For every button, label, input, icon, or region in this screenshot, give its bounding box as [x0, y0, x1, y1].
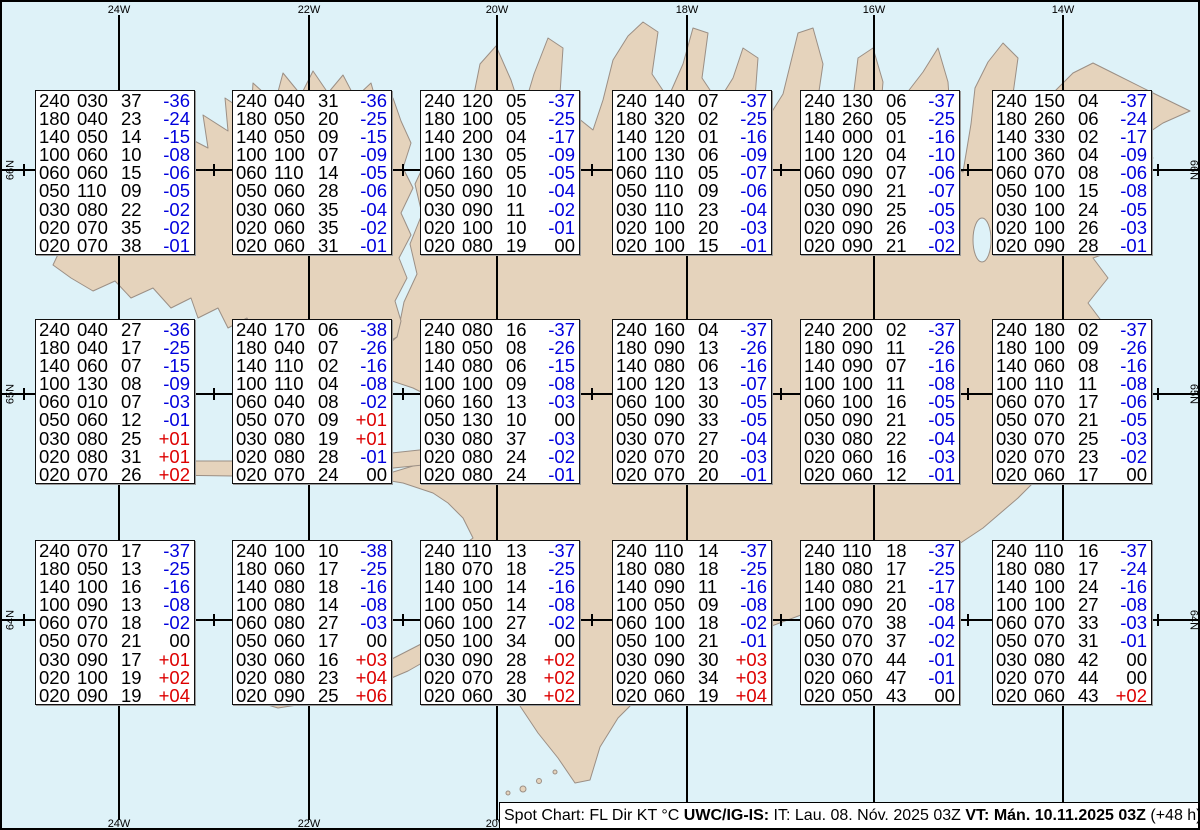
temperature-c: -01 — [349, 237, 391, 255]
spot-level-row: 0200504300 — [804, 687, 959, 705]
graticule-cross-tick — [213, 164, 215, 176]
temperature-c: -01 — [152, 237, 194, 255]
temperature-c: -01 — [537, 466, 579, 484]
wind-speed-kt: 21 — [886, 182, 917, 200]
temperature-c: +01 — [349, 411, 391, 429]
temperature-c: -01 — [917, 466, 959, 484]
wind-direction: 090 — [654, 411, 698, 429]
wind-direction: 070 — [274, 466, 318, 484]
wind-direction: 060 — [842, 466, 886, 484]
flight-level: 050 — [996, 182, 1034, 200]
wind-speed-kt: 24 — [506, 466, 537, 484]
flight-level: 050 — [616, 182, 654, 200]
wind-direction: 070 — [77, 237, 121, 255]
wind-direction: 130 — [462, 411, 506, 429]
spot-box-r1c2: 24004031-3618005020-2514005009-151001000… — [232, 90, 392, 255]
spot-box-r3c1: 24007017-3718005013-2514010016-161000901… — [35, 540, 195, 705]
wind-speed-kt: 28 — [506, 651, 537, 669]
wind-speed-kt: 22 — [886, 430, 917, 448]
temperature-c: -02 — [537, 201, 579, 219]
flight-level: 030 — [236, 201, 274, 219]
flight-level: 020 — [424, 466, 462, 484]
wind-speed-kt: 25 — [1078, 430, 1109, 448]
spot-level-row: 05009033-05 — [616, 411, 771, 429]
wind-speed-kt: 42 — [1078, 651, 1109, 669]
wind-direction: 070 — [842, 651, 886, 669]
wind-direction: 080 — [842, 430, 886, 448]
wind-speed-kt: 37 — [506, 430, 537, 448]
wind-direction: 090 — [842, 201, 886, 219]
wind-speed-kt: 12 — [886, 466, 917, 484]
wind-speed-kt: 24 — [1078, 201, 1109, 219]
graticule-cross-tick — [402, 388, 404, 400]
flight-level: 050 — [616, 411, 654, 429]
flight-level: 030 — [236, 430, 274, 448]
temperature-c: -01 — [729, 632, 771, 650]
status-issue-time: IT: Lau. 08. Nóv. 2025 03Z — [769, 807, 965, 825]
temperature-c: +01 — [349, 430, 391, 448]
flight-level: 020 — [236, 237, 274, 255]
spot-level-row: 03008025+01 — [39, 430, 194, 448]
spot-level-row: 0300804200 — [996, 651, 1151, 669]
flight-level: 020 — [996, 687, 1034, 705]
temperature-c: 00 — [1109, 466, 1151, 484]
temperature-c: +04 — [729, 687, 771, 705]
wind-direction: 070 — [842, 632, 886, 650]
longitude-label-top: 16W — [863, 4, 886, 16]
spot-box-r2c5: 24020002-3718009011-2614009007-161001001… — [800, 319, 960, 484]
spot-level-row: 05007037-02 — [804, 632, 959, 650]
graticule-cross-tick — [591, 388, 593, 400]
status-forecast-offset: (+48 h) — [1146, 807, 1200, 825]
wind-speed-kt: 25 — [318, 687, 349, 705]
flight-level: 050 — [424, 411, 462, 429]
graticule-cross-tick — [23, 614, 25, 626]
temperature-c: -04 — [729, 430, 771, 448]
temperature-c: -05 — [152, 182, 194, 200]
wind-direction: 110 — [654, 201, 698, 219]
temperature-c: +02 — [537, 651, 579, 669]
longitude-label-top: 22W — [298, 4, 321, 16]
flight-level: 030 — [616, 430, 654, 448]
wind-speed-kt: 20 — [698, 466, 729, 484]
wind-direction: 070 — [274, 411, 318, 429]
spot-level-row: 02007020-01 — [616, 466, 771, 484]
wind-direction: 060 — [77, 411, 121, 429]
wind-speed-kt: 10 — [506, 411, 537, 429]
temperature-c: -06 — [729, 182, 771, 200]
spot-level-row: 05007031-01 — [996, 632, 1151, 650]
spot-box-r1c6: 24015004-3718026006-2414033002-171003600… — [992, 90, 1152, 255]
wind-direction: 060 — [274, 201, 318, 219]
wind-speed-kt: 21 — [698, 632, 729, 650]
wind-direction: 090 — [274, 687, 318, 705]
wind-speed-kt: 28 — [318, 182, 349, 200]
wind-speed-kt: 17 — [121, 651, 152, 669]
wind-direction: 060 — [462, 687, 506, 705]
graticule-cross-tick — [967, 164, 969, 176]
spot-box-r1c3: 24012005-3718010005-2514020004-171001300… — [420, 90, 580, 255]
longitude-label-top: 20W — [486, 4, 509, 16]
latitude-label-right: 66N — [1188, 160, 1199, 180]
flight-level: 020 — [996, 466, 1034, 484]
graticule-cross-tick — [213, 388, 215, 400]
wind-direction: 090 — [654, 651, 698, 669]
wind-speed-kt: 15 — [1078, 182, 1109, 200]
wind-direction: 110 — [654, 182, 698, 200]
flight-level: 050 — [616, 632, 654, 650]
spot-level-row: 0500702100 — [39, 632, 194, 650]
flight-level: 030 — [804, 651, 842, 669]
wind-direction: 100 — [462, 632, 506, 650]
temperature-c: -01 — [729, 237, 771, 255]
spot-level-row: 02006012-01 — [804, 466, 959, 484]
wind-direction: 080 — [462, 237, 506, 255]
temperature-c: -05 — [729, 411, 771, 429]
wind-speed-kt: 17 — [318, 632, 349, 650]
spot-level-row: 05011009-06 — [616, 182, 771, 200]
flight-level: 020 — [39, 466, 77, 484]
wind-direction: 070 — [654, 430, 698, 448]
spot-level-row: 02006019+04 — [616, 687, 771, 705]
spot-box-r3c2: 24010010-3818006017-2514008018-161000801… — [232, 540, 392, 705]
temperature-c: 00 — [349, 466, 391, 484]
flight-level: 030 — [39, 201, 77, 219]
spot-level-row: 03008037-03 — [424, 430, 579, 448]
wind-speed-kt: 30 — [506, 687, 537, 705]
wind-speed-kt: 25 — [886, 201, 917, 219]
wind-speed-kt: 23 — [698, 201, 729, 219]
spot-level-row: 03009025-05 — [804, 201, 959, 219]
flight-level: 030 — [236, 651, 274, 669]
wind-speed-kt: 11 — [506, 201, 537, 219]
wind-direction: 060 — [274, 632, 318, 650]
flight-level: 020 — [616, 237, 654, 255]
spot-level-row: 05006012-01 — [39, 411, 194, 429]
spot-level-row: 03011023-04 — [616, 201, 771, 219]
spot-level-row: 0501301000 — [424, 411, 579, 429]
flight-level: 030 — [804, 430, 842, 448]
spot-box-r3c6: 24011016-3718008017-2414010024-161001002… — [992, 540, 1152, 705]
graticule-cross-tick — [780, 388, 782, 400]
wind-speed-kt: 35 — [318, 201, 349, 219]
flight-level: 030 — [39, 430, 77, 448]
flight-level: 050 — [39, 182, 77, 200]
flight-level: 030 — [424, 201, 462, 219]
spot-box-r2c2: 24017006-3818004007-2614011002-161001100… — [232, 319, 392, 484]
wind-direction: 070 — [77, 632, 121, 650]
spot-level-row: 05007009+01 — [236, 411, 391, 429]
graticule-cross-tick — [967, 614, 969, 626]
wind-speed-kt: 21 — [886, 411, 917, 429]
spot-level-row: 05011009-05 — [39, 182, 194, 200]
wind-speed-kt: 31 — [1078, 632, 1109, 650]
spot-level-row: 03007025-03 — [996, 430, 1151, 448]
wind-speed-kt: 31 — [318, 237, 349, 255]
latitude-label-left: 66N — [6, 160, 17, 180]
flight-level: 020 — [804, 687, 842, 705]
graticule-cross-tick — [967, 388, 969, 400]
latitude-label-right: 65N — [1188, 384, 1199, 404]
spot-level-row: 05009010-04 — [424, 182, 579, 200]
flight-level: 020 — [424, 687, 462, 705]
temperature-c: -03 — [1109, 430, 1151, 448]
wind-direction: 080 — [1034, 651, 1078, 669]
wind-direction: 080 — [77, 201, 121, 219]
flight-level: 020 — [804, 237, 842, 255]
flight-level: 050 — [996, 632, 1034, 650]
wind-direction: 090 — [462, 201, 506, 219]
graticule-cross-tick — [1157, 164, 1159, 176]
wind-speed-kt: 09 — [698, 182, 729, 200]
spot-box-r3c4: 24011014-3718008018-2514009011-161000500… — [612, 540, 772, 705]
spot-chart-canvas: 24W24W22W22W20W20W18W18W16W16W14W14W66N6… — [0, 0, 1200, 830]
flight-level: 030 — [424, 430, 462, 448]
temperature-c: +02 — [152, 466, 194, 484]
wind-speed-kt: 19 — [698, 687, 729, 705]
flight-level: 030 — [616, 201, 654, 219]
wind-speed-kt: 21 — [886, 237, 917, 255]
temperature-c: -01 — [1109, 632, 1151, 650]
wind-direction: 080 — [274, 430, 318, 448]
wind-speed-kt: 44 — [886, 651, 917, 669]
flight-level: 020 — [424, 237, 462, 255]
graticule-cross-tick — [1157, 388, 1159, 400]
wind-speed-kt: 37 — [886, 632, 917, 650]
spot-level-row: 0200702400 — [236, 466, 391, 484]
wind-direction: 070 — [1034, 430, 1078, 448]
flight-level: 020 — [236, 466, 274, 484]
temperature-c: 00 — [1109, 651, 1151, 669]
spot-level-row: 03006016+03 — [236, 651, 391, 669]
status-bar: Spot Chart: FL Dir KT °C UWC/IG-IS: IT: … — [499, 802, 1198, 828]
wind-direction: 110 — [77, 182, 121, 200]
spot-level-row: 0500601700 — [236, 632, 391, 650]
flight-level: 030 — [996, 651, 1034, 669]
wind-direction: 090 — [842, 411, 886, 429]
wind-speed-kt: 43 — [1078, 687, 1109, 705]
spot-level-row: 02010015-01 — [616, 237, 771, 255]
spot-level-row: 02009025+06 — [236, 687, 391, 705]
temperature-c: 00 — [537, 237, 579, 255]
wind-speed-kt: 38 — [121, 237, 152, 255]
flight-level: 030 — [39, 651, 77, 669]
spot-level-row: 03007044-01 — [804, 651, 959, 669]
wind-speed-kt: 19 — [121, 687, 152, 705]
spot-level-row: 03010024-05 — [996, 201, 1151, 219]
wind-direction: 070 — [1034, 632, 1078, 650]
wind-direction: 050 — [842, 687, 886, 705]
graticule-cross-tick — [402, 614, 404, 626]
spot-level-row: 02009028-01 — [996, 237, 1151, 255]
wind-direction: 060 — [654, 687, 698, 705]
spot-level-row: 03008022-04 — [804, 430, 959, 448]
temperature-c: -06 — [349, 182, 391, 200]
flight-level: 030 — [424, 651, 462, 669]
wind-speed-kt: 30 — [698, 651, 729, 669]
wind-speed-kt: 43 — [886, 687, 917, 705]
temperature-c: -02 — [917, 237, 959, 255]
spot-box-r2c6: 24018002-3718010009-2614006008-161001101… — [992, 319, 1152, 484]
wind-speed-kt: 21 — [121, 632, 152, 650]
spot-level-row: 02007026+02 — [39, 466, 194, 484]
spot-level-row: 03009011-02 — [424, 201, 579, 219]
graticule-cross-tick — [780, 164, 782, 176]
spot-level-row: 05010015-08 — [996, 182, 1151, 200]
temperature-c: -01 — [729, 466, 771, 484]
flight-level: 020 — [236, 687, 274, 705]
spot-level-row: 05009021-07 — [804, 182, 959, 200]
temperature-c: +01 — [152, 651, 194, 669]
spot-level-row: 02006030+02 — [424, 687, 579, 705]
spot-box-r1c4: 24014007-3718032002-2514012001-161001300… — [612, 90, 772, 255]
flight-level: 050 — [804, 182, 842, 200]
spot-level-row: 02008024-01 — [424, 466, 579, 484]
wind-direction: 100 — [1034, 182, 1078, 200]
wind-speed-kt: 34 — [506, 632, 537, 650]
longitude-label-bottom: 24W — [108, 818, 131, 830]
temperature-c: 00 — [349, 632, 391, 650]
flight-level: 020 — [996, 237, 1034, 255]
temperature-c: -01 — [917, 651, 959, 669]
graticule-cross-tick — [591, 614, 593, 626]
wind-direction: 090 — [462, 651, 506, 669]
spot-box-r1c5: 24013006-3718026005-2514000001-161001200… — [800, 90, 960, 255]
flight-level: 030 — [616, 651, 654, 669]
wind-direction: 090 — [77, 651, 121, 669]
temperature-c: -05 — [1109, 201, 1151, 219]
wind-direction: 060 — [1034, 687, 1078, 705]
wind-direction: 060 — [274, 237, 318, 255]
status-issuer: UWC/IG-IS: — [684, 807, 769, 825]
temperature-c: +04 — [152, 687, 194, 705]
temperature-c: -07 — [917, 182, 959, 200]
spot-box-r2c4: 24016004-3718009013-2614008006-161001201… — [612, 319, 772, 484]
flight-level: 030 — [996, 201, 1034, 219]
temperature-c: -04 — [537, 182, 579, 200]
spot-level-row: 02009019+04 — [39, 687, 194, 705]
status-valid-time: VT: Mán. 10.11.2025 03Z — [965, 807, 1146, 825]
flight-level: 020 — [616, 687, 654, 705]
wind-speed-kt: 09 — [318, 411, 349, 429]
graticule-cross-tick — [23, 164, 25, 176]
flight-level: 020 — [804, 466, 842, 484]
flight-level: 020 — [39, 237, 77, 255]
graticule-cross-tick — [591, 164, 593, 176]
temperature-c: +01 — [152, 430, 194, 448]
temperature-c: +03 — [349, 651, 391, 669]
wind-speed-kt: 10 — [506, 182, 537, 200]
temperature-c: -04 — [917, 430, 959, 448]
graticule-cross-tick — [213, 614, 215, 626]
flight-level: 050 — [39, 411, 77, 429]
wind-direction: 100 — [654, 237, 698, 255]
wind-speed-kt: 21 — [1078, 411, 1109, 429]
wind-direction: 070 — [77, 466, 121, 484]
wind-speed-kt: 25 — [121, 430, 152, 448]
wind-speed-kt: 15 — [698, 237, 729, 255]
spot-level-row: 03008022-02 — [39, 201, 194, 219]
spot-level-row: 03009030+03 — [616, 651, 771, 669]
spot-level-row: 02006031-01 — [236, 237, 391, 255]
status-text-prefix: Spot Chart: FL Dir KT °C — [504, 807, 684, 825]
wind-direction: 090 — [1034, 237, 1078, 255]
spot-level-row: 0200801900 — [424, 237, 579, 255]
temperature-c: -02 — [152, 201, 194, 219]
wind-direction: 060 — [274, 651, 318, 669]
temperature-c: -04 — [349, 201, 391, 219]
temperature-c: +03 — [729, 651, 771, 669]
flight-level: 050 — [804, 411, 842, 429]
flight-level: 020 — [39, 687, 77, 705]
spot-level-row: 05006028-06 — [236, 182, 391, 200]
temperature-c: -03 — [537, 430, 579, 448]
wind-direction: 060 — [274, 182, 318, 200]
flight-level: 050 — [236, 411, 274, 429]
flight-level: 050 — [39, 632, 77, 650]
spot-level-row: 03009017+01 — [39, 651, 194, 669]
wind-direction: 080 — [462, 430, 506, 448]
wind-speed-kt: 12 — [121, 411, 152, 429]
temperature-c: -04 — [729, 201, 771, 219]
wind-direction: 090 — [842, 237, 886, 255]
temperature-c: -02 — [917, 632, 959, 650]
temperature-c: -08 — [1109, 182, 1151, 200]
temperature-c: -05 — [917, 201, 959, 219]
temperature-c: -05 — [917, 411, 959, 429]
spot-box-r3c3: 24011013-3718007018-2514010014-161000501… — [420, 540, 580, 705]
spot-level-row: 05007021-05 — [996, 411, 1151, 429]
flight-level: 050 — [424, 182, 462, 200]
wind-speed-kt: 19 — [506, 237, 537, 255]
wind-speed-kt: 16 — [318, 651, 349, 669]
latitude-label-right: 64N — [1188, 610, 1199, 630]
longitude-label-top: 14W — [1052, 4, 1075, 16]
spot-level-row: 0501003400 — [424, 632, 579, 650]
spot-level-row: 03007027-04 — [616, 430, 771, 448]
flight-level: 050 — [804, 632, 842, 650]
spot-box-r2c1: 24004027-3618004017-2514006007-151001300… — [35, 319, 195, 484]
wind-direction: 090 — [462, 182, 506, 200]
temperature-c: -01 — [1109, 237, 1151, 255]
wind-direction: 090 — [77, 687, 121, 705]
graticule-cross-tick — [780, 614, 782, 626]
spot-box-r3c5: 24011018-3718008017-2514008021-171000902… — [800, 540, 960, 705]
spot-level-row: 03006035-04 — [236, 201, 391, 219]
spot-level-row: 0200601700 — [996, 466, 1151, 484]
wind-direction: 070 — [654, 466, 698, 484]
spot-level-row: 05010021-01 — [616, 632, 771, 650]
wind-direction: 100 — [1034, 201, 1078, 219]
flight-level: 050 — [424, 632, 462, 650]
wind-direction: 080 — [77, 430, 121, 448]
wind-direction: 090 — [842, 182, 886, 200]
spot-box-r2c3: 24008016-3718005008-2614008006-151001000… — [420, 319, 580, 484]
flight-level: 030 — [996, 430, 1034, 448]
temperature-c: 00 — [917, 687, 959, 705]
temperature-c: +06 — [349, 687, 391, 705]
graticule-cross-tick — [1157, 614, 1159, 626]
temperature-c: -01 — [152, 411, 194, 429]
longitude-label-bottom: 22W — [298, 818, 321, 830]
longitude-label-top: 24W — [108, 4, 131, 16]
wind-direction: 100 — [654, 632, 698, 650]
temperature-c: 00 — [152, 632, 194, 650]
graticule-cross-tick — [23, 388, 25, 400]
spot-level-row: 03008019+01 — [236, 430, 391, 448]
wind-speed-kt: 27 — [698, 430, 729, 448]
graticule-cross-tick — [402, 164, 404, 176]
